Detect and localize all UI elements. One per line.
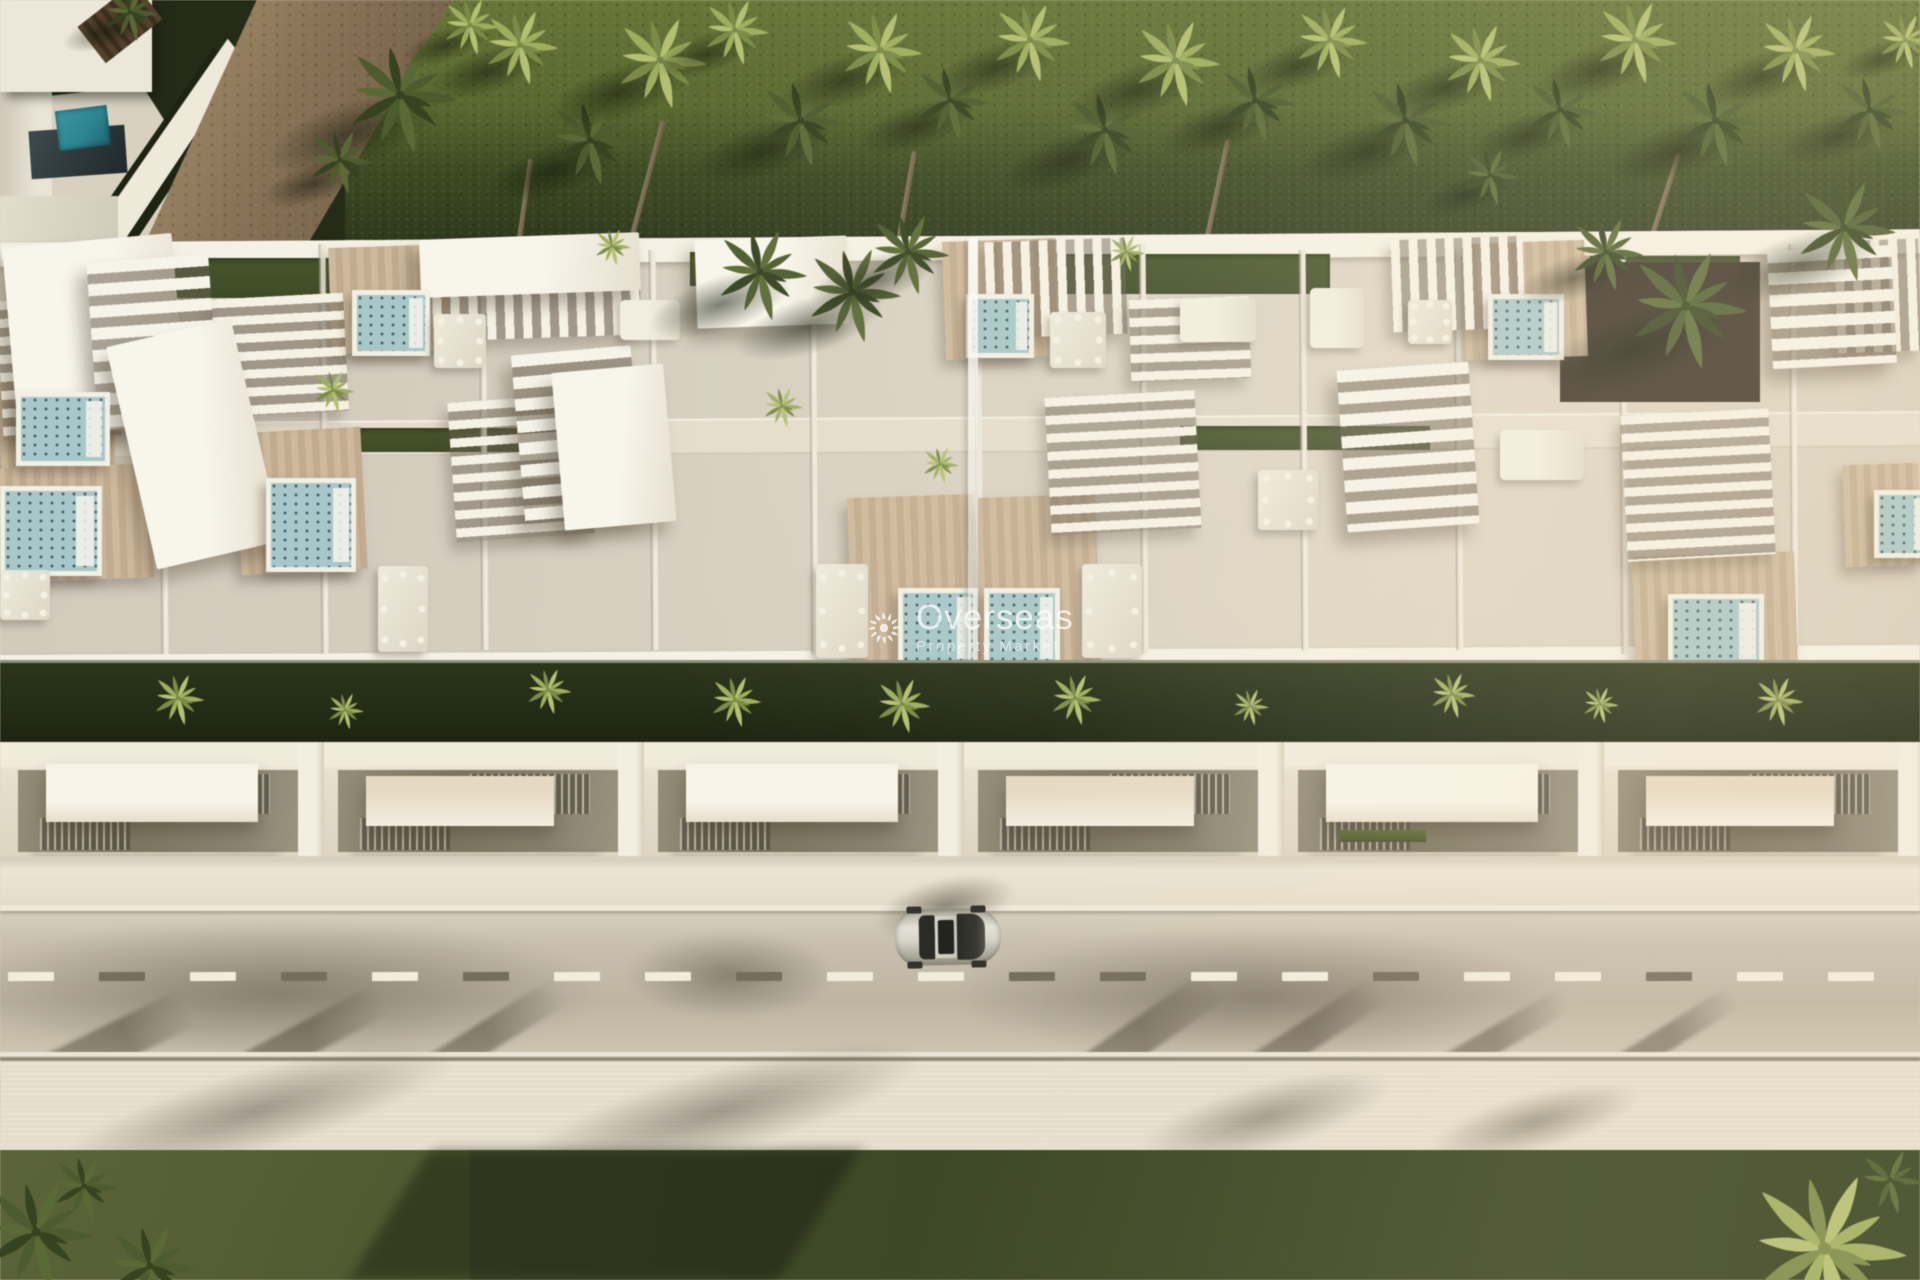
- stair-bulkhead: [1337, 362, 1480, 533]
- stair-bulkhead: [551, 363, 676, 530]
- lane-dash: [554, 972, 600, 981]
- bottom-grass-shadow: [349, 1150, 860, 1280]
- car-wheel: [906, 906, 921, 913]
- balcony-slab: [686, 764, 898, 822]
- dining-set: [1050, 312, 1106, 368]
- lane-dash: [1828, 972, 1874, 981]
- balcony-planter: [1340, 830, 1426, 842]
- jacuzzi: [352, 290, 430, 356]
- dining-set: [1408, 300, 1452, 344]
- bottom-grass-texture: [0, 1150, 1920, 1280]
- lane-dash: [1191, 972, 1237, 981]
- jacuzzi: [898, 588, 978, 668]
- villa-pool: [55, 105, 111, 151]
- car-wheel: [907, 961, 922, 968]
- balcony-slab: [1326, 764, 1538, 822]
- lane-dash: [1646, 972, 1692, 981]
- facade-module: [960, 742, 1280, 858]
- sun-lounger: [1500, 430, 1584, 480]
- car-sunroof: [938, 920, 955, 954]
- lane-dash: [1555, 972, 1601, 981]
- jacuzzi: [0, 486, 102, 576]
- facade-module: [640, 742, 960, 858]
- jacuzzi: [266, 478, 356, 572]
- lane-dash: [8, 972, 54, 981]
- dining-set: [1258, 470, 1318, 530]
- jacuzzi: [16, 392, 110, 466]
- balcony-slab: [46, 764, 258, 822]
- jacuzzi: [1874, 490, 1920, 558]
- jacuzzi: [984, 588, 1060, 668]
- car-windshield: [919, 915, 936, 959]
- lane-dash: [1282, 972, 1328, 981]
- sun-lounger: [1180, 298, 1256, 342]
- glass-divider: [968, 238, 978, 662]
- facade-module: [320, 742, 640, 858]
- facade-pier: [1898, 742, 1920, 856]
- facade-module: [1600, 742, 1920, 858]
- scene: [0, 0, 1920, 1280]
- lane-dash: [645, 972, 691, 981]
- lane-dash: [1100, 972, 1146, 981]
- lane-dash: [1464, 972, 1510, 981]
- facade-module: [0, 742, 320, 858]
- aerial-render: Overseas Property Market: [0, 0, 1920, 1280]
- car: [894, 906, 1001, 968]
- dining-set: [0, 570, 50, 620]
- lane-dash: [1373, 972, 1419, 981]
- balcony-slab: [366, 776, 554, 826]
- lane-dash: [372, 972, 418, 981]
- dining-set: [434, 314, 486, 368]
- lane-dash: [918, 972, 964, 981]
- lane-dash: [1737, 972, 1783, 981]
- lane-dash: [736, 972, 782, 981]
- dining-set: [1082, 564, 1142, 658]
- dining-set: [378, 566, 428, 652]
- sun-lounger: [1310, 288, 1364, 348]
- lane-dash: [99, 972, 145, 981]
- facade-module: [1280, 742, 1600, 858]
- pergola: [1044, 390, 1201, 536]
- lane-dash: [281, 972, 327, 981]
- car-rear-glass: [957, 913, 986, 959]
- balcony-slab: [1006, 776, 1194, 826]
- louver-screen: [680, 818, 770, 850]
- balcony-slab: [1646, 776, 1834, 826]
- dining-set: [816, 564, 868, 658]
- louver-screen: [40, 818, 130, 850]
- lane-dash: [190, 972, 236, 981]
- lane-dash: [463, 972, 509, 981]
- front-hedge-texture: [0, 660, 1920, 744]
- car-wheel: [971, 960, 986, 967]
- car-wheel: [970, 905, 985, 912]
- lane-dash: [827, 972, 873, 981]
- pergola: [1620, 408, 1775, 562]
- jacuzzi: [1668, 594, 1764, 668]
- lane-dash: [1009, 972, 1055, 981]
- stair-bulkhead: [419, 232, 641, 298]
